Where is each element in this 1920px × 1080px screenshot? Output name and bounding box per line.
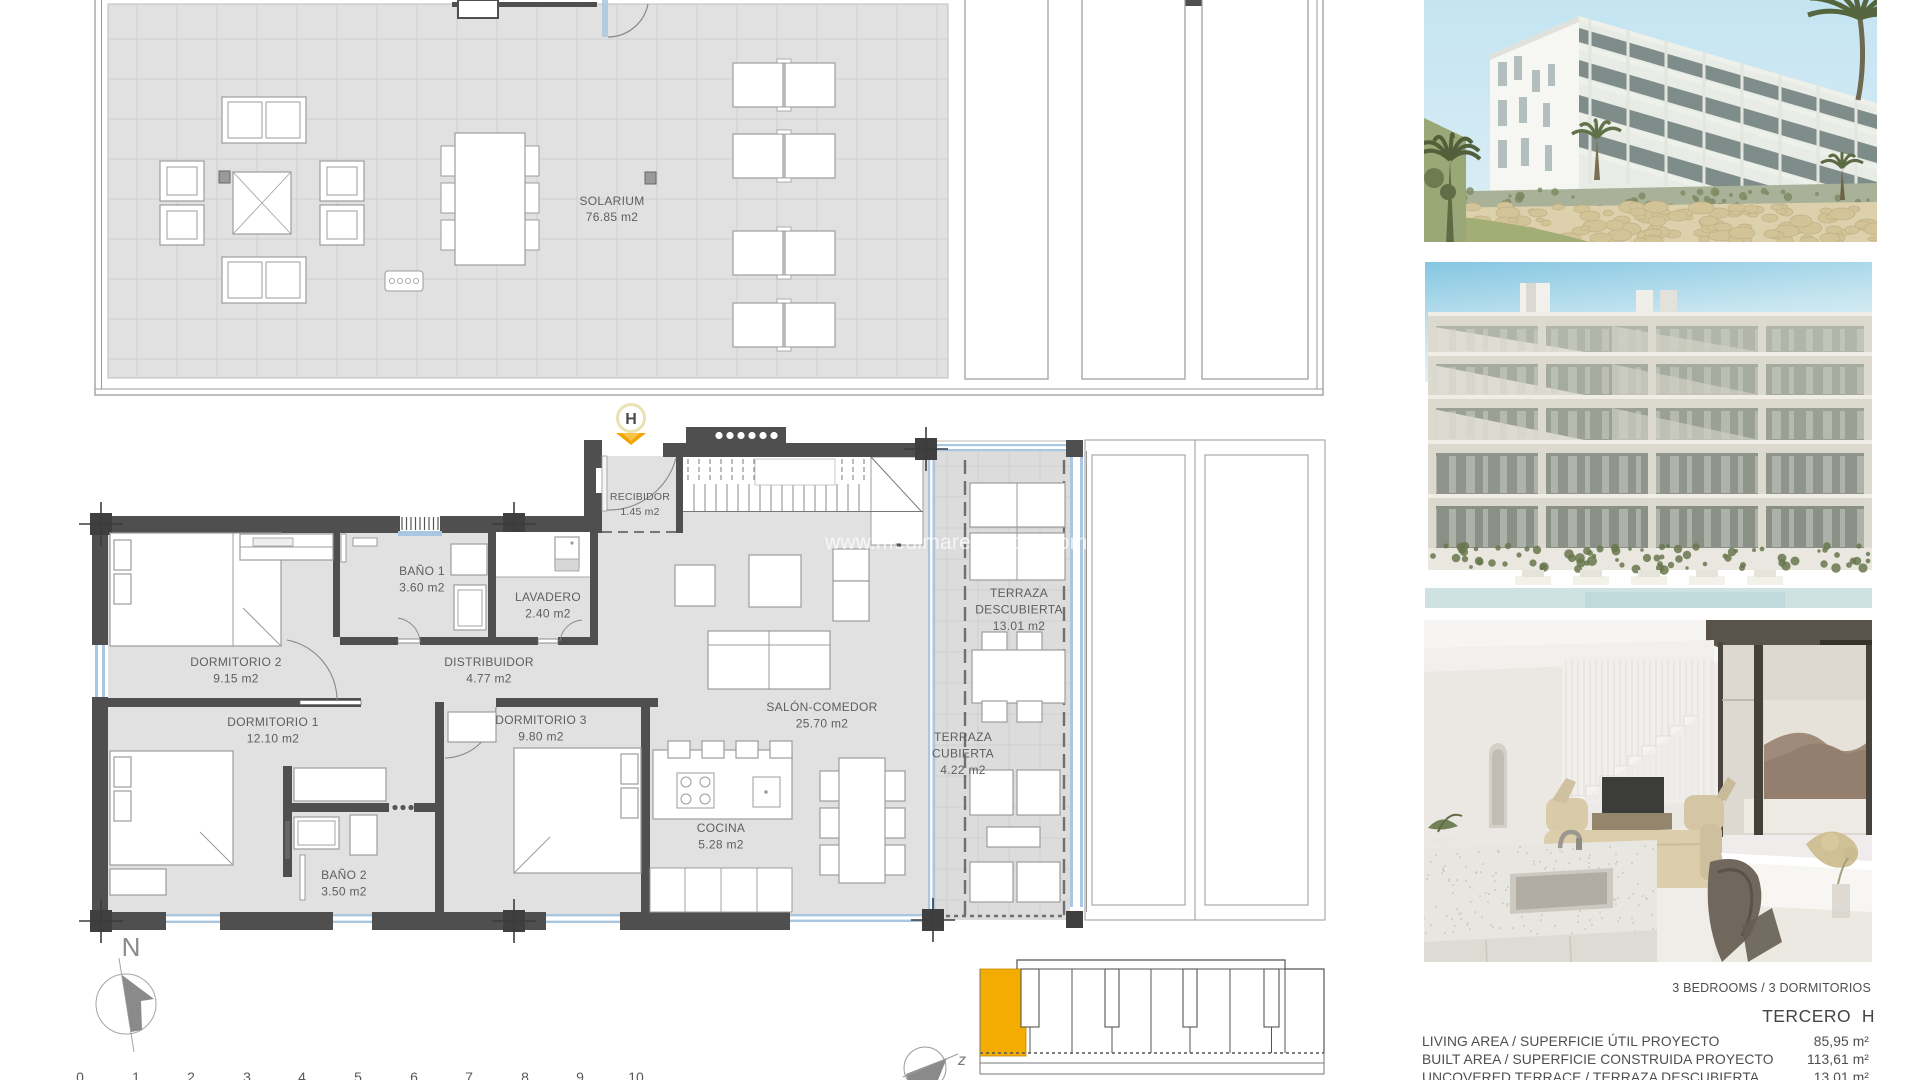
svg-text:3: 3 bbox=[243, 1069, 251, 1080]
svg-text:COCINA: COCINA bbox=[697, 821, 745, 835]
svg-text:H: H bbox=[625, 411, 637, 428]
svg-text:9.80 m2: 9.80 m2 bbox=[518, 730, 563, 744]
svg-text:DORMITORIO 3: DORMITORIO 3 bbox=[495, 713, 586, 727]
svg-text:7: 7 bbox=[465, 1069, 473, 1080]
svg-text:BAÑO 2: BAÑO 2 bbox=[321, 868, 367, 882]
svg-text:12.10 m2: 12.10 m2 bbox=[247, 732, 299, 746]
svg-text:1: 1 bbox=[132, 1069, 140, 1080]
svg-text:DESCUBIERTA: DESCUBIERTA bbox=[975, 603, 1063, 617]
svg-text:LIVING AREA / SUPERFICIE ÚTIL: LIVING AREA / SUPERFICIE ÚTIL PROYECTO bbox=[1422, 1033, 1720, 1049]
svg-text:www.medimareiendom.com: www.medimareiendom.com bbox=[824, 531, 1087, 554]
svg-text:TERRAZA: TERRAZA bbox=[990, 586, 1048, 600]
svg-text:UNCOVERED TERRACE / TERRAZA DE: UNCOVERED TERRACE / TERRAZA DESCUBIERTA bbox=[1422, 1070, 1760, 1080]
svg-text:8: 8 bbox=[521, 1069, 529, 1080]
svg-text:LAVADERO: LAVADERO bbox=[515, 590, 581, 604]
svg-text:85,95 m²: 85,95 m² bbox=[1814, 1034, 1870, 1049]
svg-text:BAÑO 1: BAÑO 1 bbox=[399, 564, 445, 578]
svg-text:N: N bbox=[122, 932, 141, 962]
svg-text:6: 6 bbox=[410, 1069, 418, 1080]
svg-text:5: 5 bbox=[354, 1069, 362, 1080]
svg-text:TERCERO H: TERCERO H bbox=[1762, 1006, 1875, 1026]
svg-text:TERRAZA: TERRAZA bbox=[934, 730, 992, 744]
svg-text:2: 2 bbox=[187, 1069, 195, 1080]
svg-text:9: 9 bbox=[576, 1069, 584, 1080]
svg-text:13.01 m2: 13.01 m2 bbox=[993, 619, 1045, 633]
svg-text:13,01 m²: 13,01 m² bbox=[1814, 1070, 1870, 1080]
svg-text:113,61 m²: 113,61 m² bbox=[1807, 1052, 1869, 1067]
svg-text:3.60 m2: 3.60 m2 bbox=[399, 581, 444, 595]
svg-text:3 BEDROOMS / 3 DORMITORIOS: 3 BEDROOMS / 3 DORMITORIOS bbox=[1672, 981, 1871, 995]
svg-text:2.40 m2: 2.40 m2 bbox=[525, 607, 570, 621]
svg-text:DISTRIBUIDOR: DISTRIBUIDOR bbox=[444, 655, 534, 669]
svg-text:CUBIERTA: CUBIERTA bbox=[932, 747, 994, 761]
svg-text:5.28 m2: 5.28 m2 bbox=[698, 838, 743, 852]
svg-text:10: 10 bbox=[628, 1069, 644, 1080]
svg-text:4.22 m2: 4.22 m2 bbox=[940, 763, 985, 777]
svg-text:RECIBIDOR: RECIBIDOR bbox=[610, 491, 670, 503]
svg-text:DORMITORIO 1: DORMITORIO 1 bbox=[227, 715, 318, 729]
svg-text:SALÓN-COMEDOR: SALÓN-COMEDOR bbox=[766, 699, 877, 714]
svg-text:z: z bbox=[957, 1052, 966, 1069]
svg-text:9.15 m2: 9.15 m2 bbox=[213, 672, 258, 686]
svg-text:4.77 m2: 4.77 m2 bbox=[466, 672, 511, 686]
svg-text:4: 4 bbox=[298, 1069, 306, 1080]
svg-text:BUILT AREA / SUPERFICIE CONSTR: BUILT AREA / SUPERFICIE CONSTRUIDA PROYE… bbox=[1422, 1052, 1774, 1067]
svg-text:25.70 m2: 25.70 m2 bbox=[796, 717, 848, 731]
svg-text:3.50 m2: 3.50 m2 bbox=[321, 885, 366, 899]
svg-text:76.85 m2: 76.85 m2 bbox=[586, 210, 638, 224]
svg-text:1.45 m2: 1.45 m2 bbox=[620, 506, 659, 518]
svg-text:SOLARIUM: SOLARIUM bbox=[579, 194, 644, 208]
svg-text:DORMITORIO 2: DORMITORIO 2 bbox=[190, 655, 281, 669]
svg-text:0: 0 bbox=[76, 1069, 84, 1080]
